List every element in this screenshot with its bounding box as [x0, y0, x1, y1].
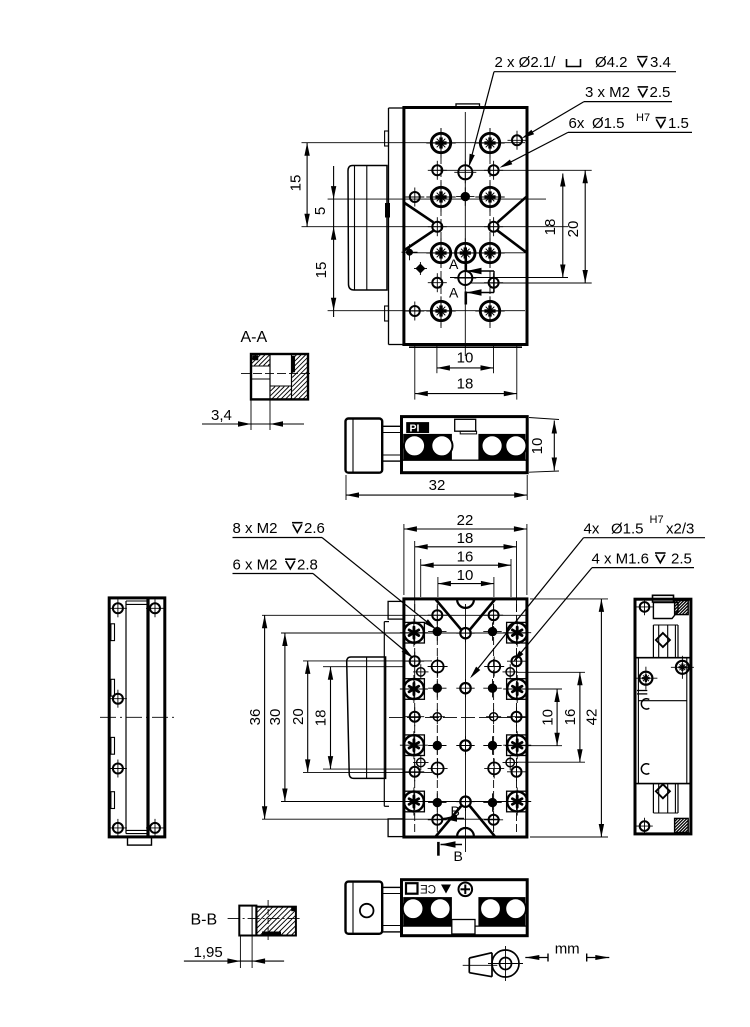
- svg-text:30: 30: [267, 709, 284, 726]
- svg-text:18: 18: [313, 710, 330, 727]
- svg-text:2.6: 2.6: [304, 520, 325, 537]
- svg-text:36: 36: [247, 709, 264, 726]
- svg-text:2.5: 2.5: [650, 84, 671, 101]
- svg-text:18: 18: [457, 376, 474, 393]
- svg-text:10: 10: [539, 709, 556, 726]
- svg-text:10: 10: [457, 567, 474, 584]
- svg-text:A: A: [449, 256, 459, 272]
- svg-text:18: 18: [457, 530, 474, 547]
- svg-text:Ø1.5: Ø1.5: [592, 115, 625, 132]
- svg-text:6x: 6x: [569, 115, 585, 132]
- svg-text:mm: mm: [555, 941, 580, 958]
- svg-text:16: 16: [562, 709, 579, 726]
- svg-text:2.8: 2.8: [297, 557, 318, 574]
- svg-text:x2/3: x2/3: [666, 521, 694, 538]
- svg-text:20: 20: [565, 221, 582, 238]
- svg-text:1,95: 1,95: [194, 944, 223, 961]
- svg-text:18: 18: [542, 219, 559, 236]
- svg-text:A-A: A-A: [241, 329, 268, 346]
- svg-text:3.4: 3.4: [650, 54, 671, 71]
- svg-text:B: B: [454, 848, 463, 864]
- svg-text:6 x M2: 6 x M2: [233, 557, 278, 574]
- svg-text:A: A: [449, 285, 459, 301]
- svg-text:4x: 4x: [584, 521, 600, 538]
- svg-text:32: 32: [429, 477, 446, 494]
- svg-text:8 x M2: 8 x M2: [233, 520, 278, 537]
- svg-text:10: 10: [457, 350, 474, 367]
- svg-text:CE: CE: [420, 885, 436, 897]
- svg-text:B: B: [451, 803, 460, 819]
- svg-text:H7: H7: [650, 514, 664, 526]
- svg-text:42: 42: [584, 709, 601, 726]
- svg-text:2 x Ø2.1/: 2 x Ø2.1/: [495, 54, 557, 71]
- svg-text:15: 15: [313, 262, 330, 279]
- svg-text:5: 5: [312, 207, 329, 215]
- svg-text:20: 20: [290, 708, 307, 725]
- svg-text:4 x M1.6: 4 x M1.6: [592, 550, 650, 567]
- svg-text:22: 22: [457, 512, 474, 529]
- svg-text:PI: PI: [410, 422, 420, 434]
- svg-text:16: 16: [457, 548, 474, 565]
- svg-text:Ø1.5: Ø1.5: [611, 521, 644, 538]
- svg-text:3,4: 3,4: [211, 407, 232, 424]
- svg-text:15: 15: [288, 175, 305, 192]
- svg-text:2.5: 2.5: [671, 550, 692, 567]
- svg-text:10: 10: [529, 438, 546, 455]
- svg-text:H7: H7: [636, 112, 650, 124]
- svg-text:B-B: B-B: [191, 912, 218, 929]
- svg-text:3 x M2: 3 x M2: [585, 84, 630, 101]
- svg-text:1.5: 1.5: [668, 115, 689, 132]
- svg-text:Ø4.2: Ø4.2: [595, 54, 628, 71]
